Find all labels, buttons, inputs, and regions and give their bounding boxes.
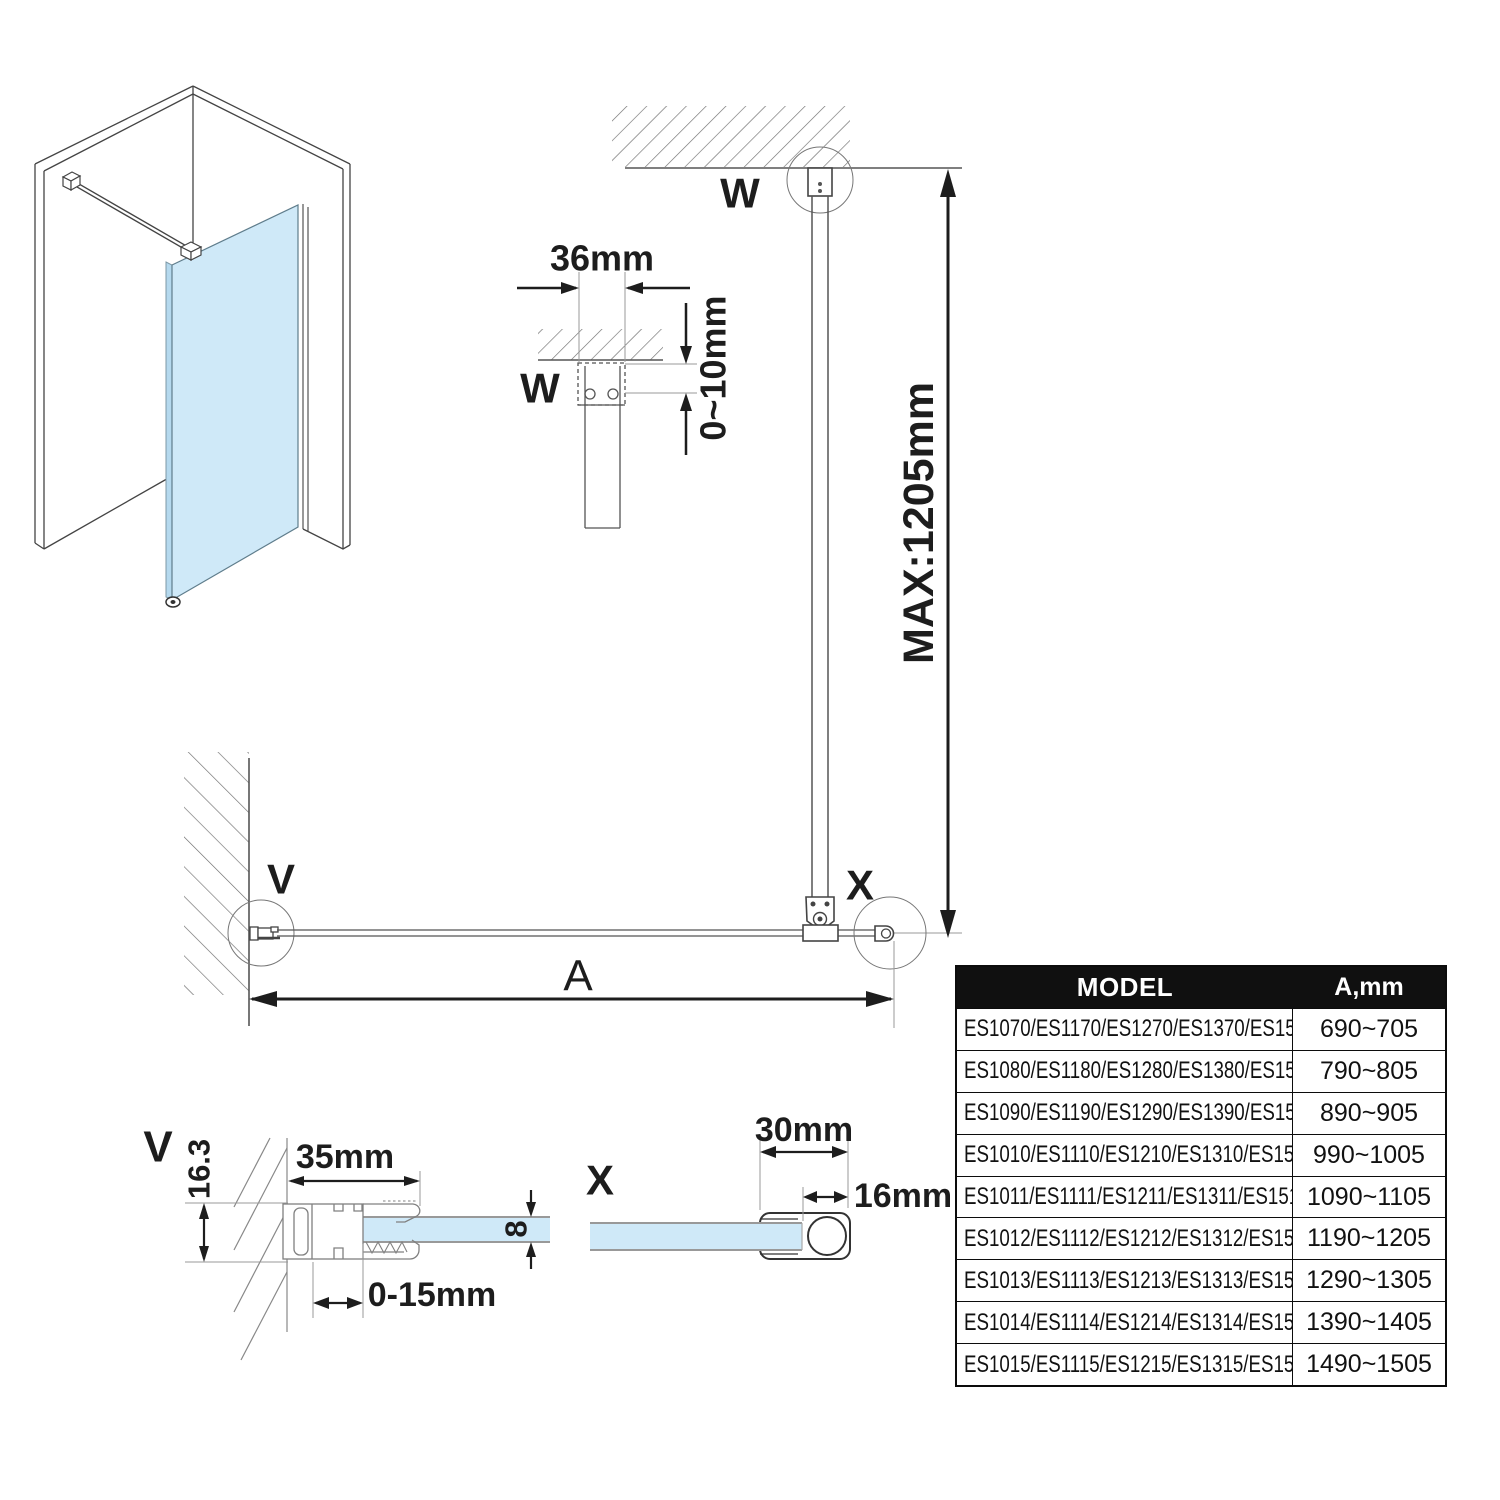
detail-v: V 16.3 35mm	[143, 1123, 550, 1361]
a-cell: 890~905	[1293, 1093, 1445, 1134]
dim-30mm-label: 30mm	[755, 1111, 853, 1149]
model-cell: ES1014/ES1114/ES1214/ES1314/ES1514	[964, 1309, 1293, 1337]
a-cell: 1190~1205	[1293, 1218, 1445, 1259]
column-header-a: A,mm	[1293, 973, 1445, 1002]
end-profile-tube	[808, 1217, 846, 1255]
dim-max-label: MAX:1205mm	[895, 382, 943, 664]
dim-16-3: 16.3	[182, 1139, 289, 1262]
dim-35mm-label: 35mm	[296, 1138, 394, 1176]
table-row: ES1090/ES1190/ES1290/ES1390/ES1590 890~9…	[957, 1092, 1445, 1134]
dim-a: A	[249, 941, 894, 1028]
model-cell: ES1015/ES1115/ES1215/ES1315/ES1515	[964, 1351, 1293, 1379]
iso-glass-panel	[166, 205, 298, 600]
dim-0-10mm: 0~10mm	[625, 295, 734, 455]
a-cell: 1290~1305	[1293, 1260, 1445, 1301]
a-cell: 1090~1105	[1293, 1177, 1445, 1218]
detail-w: W 36mm	[517, 238, 734, 529]
ceiling-hatch	[612, 106, 850, 167]
model-cell: ES1012/ES1112/ES1212/ES1312/ES1512	[964, 1225, 1293, 1253]
table-row: ES1011/ES1111/ES1211/ES1311/ES1511 1090~…	[957, 1176, 1445, 1218]
plan-end-cap	[875, 926, 894, 941]
table-row: ES1014/ES1114/ES1214/ES1314/ES1514 1390~…	[957, 1301, 1445, 1343]
detail-x: X 30mm 16mm	[586, 1111, 952, 1259]
elevation-w-label: W	[720, 170, 760, 217]
a-cell: 790~805	[1293, 1051, 1445, 1092]
detail-w-label: W	[520, 365, 560, 412]
spec-table-header: MODEL A,mm	[957, 967, 1445, 1008]
plan-wall-connector	[250, 927, 280, 940]
model-cell: ES1010/ES1110/ES1210/ES1310/ES1510	[964, 1141, 1293, 1169]
dim-16-3-label: 16.3	[182, 1139, 217, 1199]
dim-max-1205: MAX:1205mm	[894, 169, 962, 938]
model-cell: ES1013/ES1113/ES1213/ES1313/ES1513	[964, 1267, 1293, 1295]
support-pole	[812, 196, 828, 897]
plan-x-label: X	[846, 862, 874, 909]
model-cell: ES1011/ES1111/ES1211/ES1311/ES1511	[964, 1183, 1293, 1211]
wall-hatch	[538, 329, 663, 360]
a-cell: 990~1005	[1293, 1135, 1445, 1176]
plan-clamp-block	[803, 925, 838, 941]
model-cell: ES1070/ES1170/ES1270/ES1370/ES1570	[964, 1015, 1293, 1043]
dim-0-15mm-label: 0-15mm	[368, 1276, 497, 1314]
plan-glass	[277, 930, 875, 936]
table-row: ES1012/ES1112/ES1212/ES1312/ES1512 1190~…	[957, 1217, 1445, 1259]
table-row: ES1013/ES1113/ES1213/ES1313/ES1513 1290~…	[957, 1259, 1445, 1301]
a-cell: 690~705	[1293, 1009, 1445, 1050]
iso-support-bar	[63, 172, 201, 260]
dim-16mm-label: 16mm	[854, 1177, 952, 1215]
w-support-bar	[585, 366, 620, 528]
dim-35mm: 35mm	[288, 1138, 420, 1206]
dim-8: 8	[499, 1190, 537, 1269]
plan-wall-hatch	[184, 752, 249, 995]
dim-8-label: 8	[499, 1220, 534, 1237]
table-row: ES1070/ES1170/ES1270/ES1370/ES1570 690~7…	[957, 1008, 1445, 1050]
iso-floor-foot	[166, 597, 180, 607]
column-header-model: MODEL	[957, 972, 1293, 1003]
a-cell: 1490~1505	[1293, 1344, 1445, 1385]
detail-x-glass	[590, 1223, 802, 1250]
dim-36mm-label: 36mm	[550, 238, 654, 279]
detail-x-label: X	[586, 1157, 614, 1204]
spec-table: MODEL A,mm ES1070/ES1170/ES1270/ES1370/E…	[955, 965, 1447, 1387]
elevation-view: W MAX:1205mm	[612, 106, 962, 938]
isometric-view	[35, 86, 350, 607]
plan-view: V X A	[184, 752, 926, 1028]
dim-a-label: A	[563, 952, 593, 1001]
detail-v-label: V	[143, 1123, 173, 1172]
model-cell: ES1080/ES1180/ES1280/ES1380/ES1580	[964, 1057, 1293, 1085]
plan-v-label: V	[267, 856, 295, 903]
table-row: ES1010/ES1110/ES1210/ES1310/ES1510 990~1…	[957, 1134, 1445, 1176]
table-row: ES1080/ES1180/ES1280/ES1380/ES1580 790~8…	[957, 1050, 1445, 1092]
model-cell: ES1090/ES1190/ES1290/ES1390/ES1590	[964, 1099, 1293, 1127]
detail-v-wall	[234, 1138, 287, 1360]
a-cell: 1390~1405	[1293, 1302, 1445, 1343]
dim-0-10mm-label: 0~10mm	[693, 295, 734, 440]
table-row: ES1015/ES1115/ES1215/ES1315/ES1515 1490~…	[957, 1343, 1445, 1385]
